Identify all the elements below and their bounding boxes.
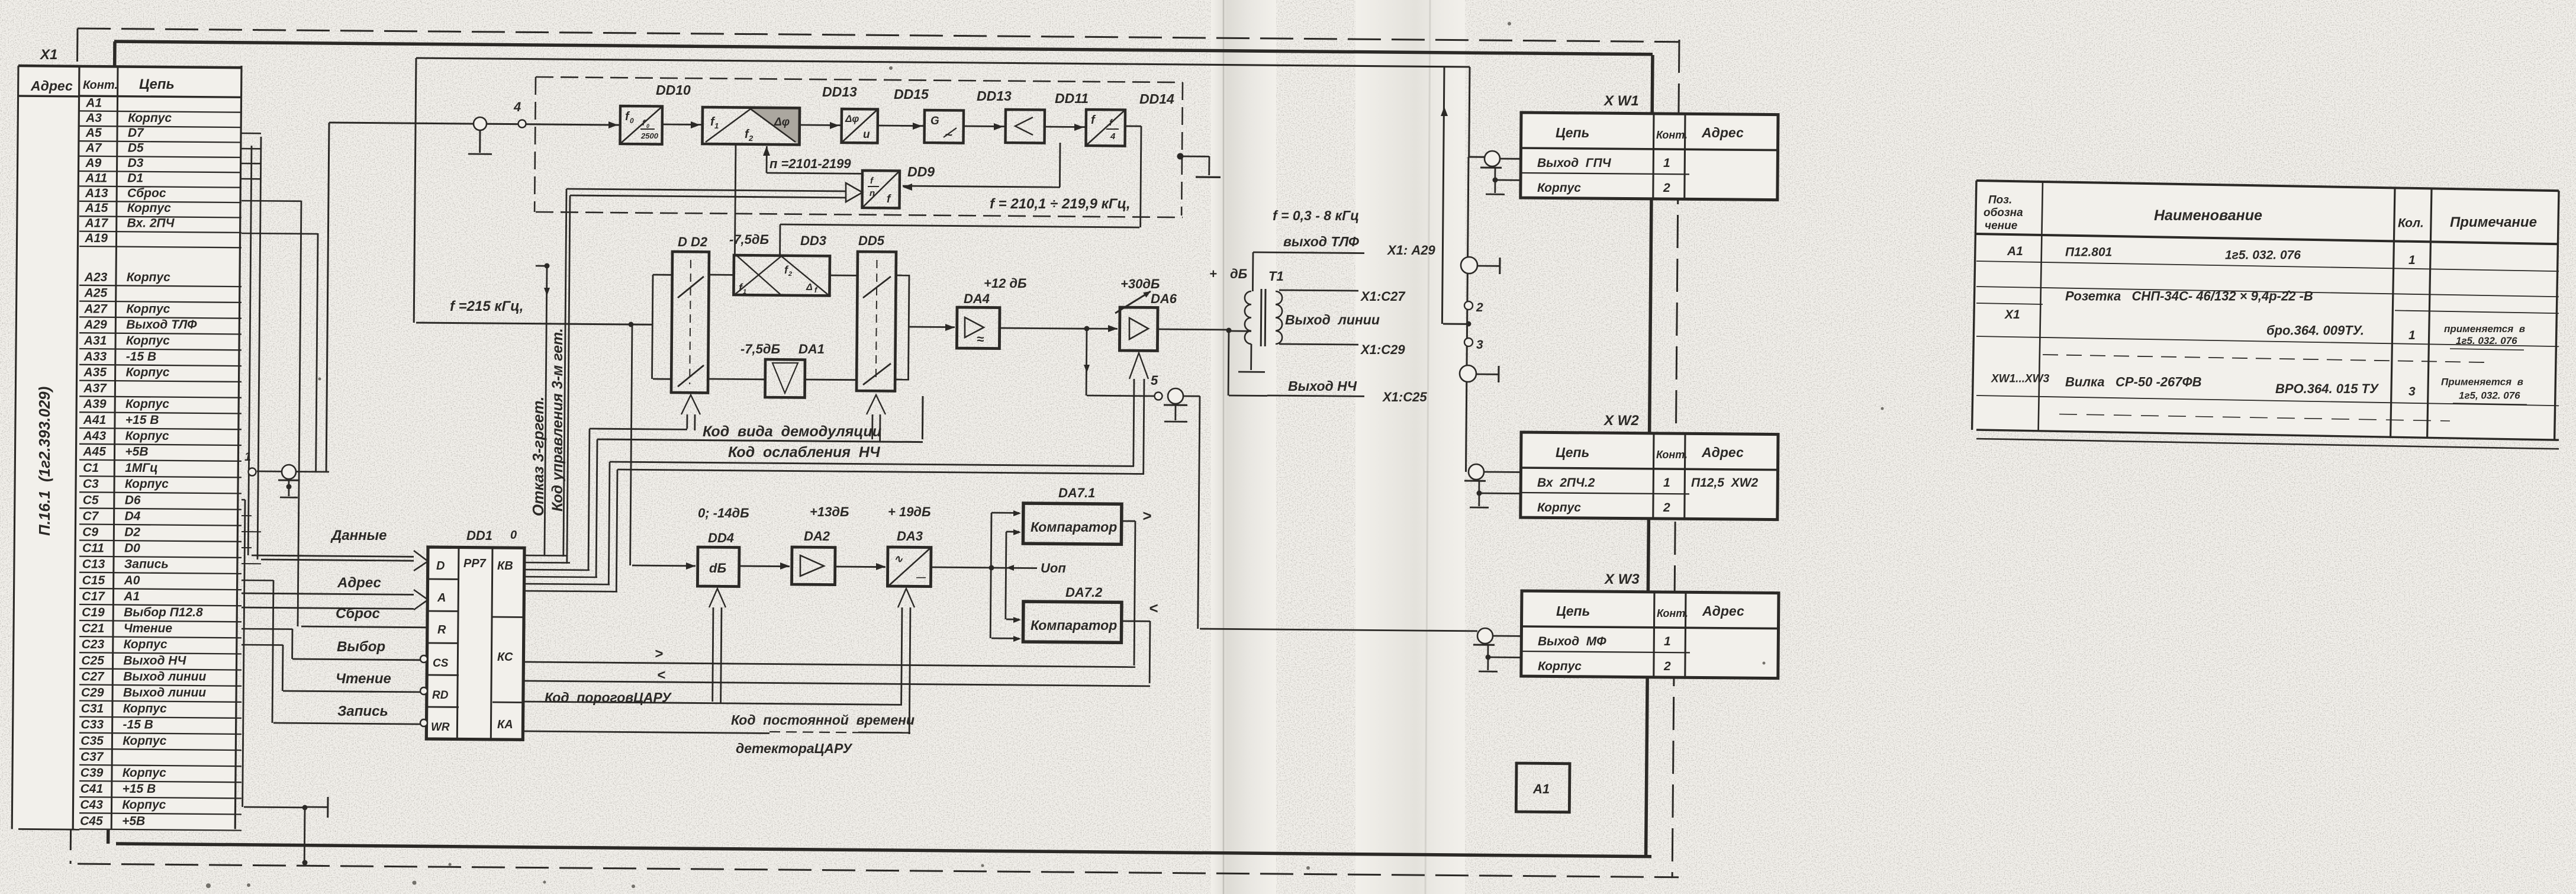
svg-text:3: 3 <box>1476 338 1483 352</box>
svg-text:0: 0 <box>646 123 649 129</box>
svg-text:Адрес: Адрес <box>337 575 381 591</box>
svg-text:WR: WR <box>431 721 450 734</box>
svg-text:Выход линии: Выход линии <box>123 686 206 700</box>
svg-text:D0: D0 <box>124 542 140 555</box>
svg-text:X W3: X W3 <box>1603 571 1640 587</box>
svg-text:Адрес: Адрес <box>1702 603 1744 619</box>
svg-text:Компаратор: Компаратор <box>1031 618 1117 633</box>
svg-text:+5В: +5В <box>122 814 145 828</box>
svg-text:Запись: Запись <box>337 703 388 719</box>
svg-text:ВРО.364. 015 ТУ: ВРО.364. 015 ТУ <box>2275 381 2379 396</box>
svg-text:+15 В: +15 В <box>123 782 156 796</box>
svg-text:DD5: DD5 <box>858 233 885 248</box>
svg-text:<: < <box>1149 599 1158 617</box>
svg-text:Сброс: Сброс <box>127 186 166 200</box>
svg-text:dБ: dБ <box>709 561 726 575</box>
svg-text:КС: КС <box>497 651 513 664</box>
svg-text:Корпус: Корпус <box>125 397 169 411</box>
svg-text:A29: A29 <box>83 318 107 332</box>
svg-text:C29: C29 <box>81 686 104 700</box>
svg-text:РР7: РР7 <box>463 557 487 570</box>
svg-text:C21: C21 <box>82 622 105 635</box>
svg-text:Корпус: Корпус <box>122 798 166 812</box>
svg-text:1: 1 <box>244 451 251 464</box>
svg-text:1: 1 <box>743 288 746 295</box>
svg-text:Выход МФ: Выход МФ <box>1538 635 1606 648</box>
svg-text:обозна: обозна <box>1983 207 2023 219</box>
svg-text:Δφ: Δφ <box>845 113 859 124</box>
svg-text:A11: A11 <box>85 171 107 185</box>
svg-text:A9: A9 <box>85 156 102 170</box>
svg-text:A15: A15 <box>85 201 108 215</box>
svg-text:Выбор П12.8: Выбор П12.8 <box>124 606 203 619</box>
svg-text:>: > <box>655 646 663 662</box>
svg-text:Корпус: Корпус <box>125 429 169 443</box>
svg-text:C9: C9 <box>82 526 98 539</box>
svg-text:Корпус: Корпус <box>125 477 169 491</box>
svg-text:Корпус: Корпус <box>123 734 166 748</box>
svg-text:Выход НЧ: Выход НЧ <box>1288 378 1357 394</box>
svg-text:А1: А1 <box>123 590 140 603</box>
svg-text:A1: A1 <box>85 96 102 110</box>
svg-text:G: G <box>930 115 939 127</box>
svg-text:1г5, 032. 076: 1г5, 032. 076 <box>2459 390 2520 401</box>
svg-text:2: 2 <box>748 134 754 143</box>
svg-text:1г5. 032. 076: 1г5. 032. 076 <box>2456 335 2517 346</box>
svg-text:+5В: +5В <box>125 445 148 459</box>
svg-text:чение: чение <box>1985 220 2018 232</box>
svg-text:Применяется в: Применяется в <box>2441 377 2523 388</box>
svg-text:A37: A37 <box>83 381 107 395</box>
svg-text:DA2: DA2 <box>804 529 830 544</box>
svg-text:дБ: дБ <box>1230 266 1247 281</box>
svg-text:DD1: DD1 <box>466 528 492 543</box>
svg-text:A3: A3 <box>85 111 102 125</box>
svg-text:XW1...XW3: XW1...XW3 <box>1991 372 2050 385</box>
svg-text:4: 4 <box>1110 131 1116 142</box>
svg-text:1МГц: 1МГц <box>125 461 158 475</box>
svg-text:C1: C1 <box>83 461 99 475</box>
svg-text:применяется в: применяется в <box>2444 323 2525 335</box>
svg-text:D: D <box>436 559 445 573</box>
svg-text:D1: D1 <box>127 171 143 185</box>
svg-text:+12 дБ: +12 дБ <box>984 276 1027 291</box>
svg-text:Выбор: Выбор <box>337 639 385 655</box>
svg-text:+13дБ: +13дБ <box>810 504 849 519</box>
svg-text:Корпус: Корпус <box>127 271 170 284</box>
svg-text:DD11: DD11 <box>1055 91 1089 106</box>
svg-text:A19: A19 <box>84 231 108 245</box>
svg-text:D6: D6 <box>125 493 141 507</box>
svg-text:1: 1 <box>714 121 719 130</box>
svg-text:Выход линии: Выход линии <box>123 670 206 683</box>
svg-text:выход ТЛФ: выход ТЛФ <box>1283 234 1359 249</box>
svg-text:C27: C27 <box>81 670 105 683</box>
svg-text:RD: RD <box>432 689 449 702</box>
svg-text:1: 1 <box>1663 156 1670 170</box>
svg-text:Корпус: Корпус <box>123 766 166 780</box>
svg-text:n: n <box>870 188 875 198</box>
svg-text:X1: А29: X1: А29 <box>1386 243 1435 258</box>
svg-text:A41: A41 <box>83 413 107 427</box>
svg-text:DD4: DD4 <box>708 530 734 545</box>
svg-text:Чтение: Чтение <box>336 671 391 687</box>
svg-text:CS: CS <box>433 657 449 670</box>
svg-text:Выход НЧ: Выход НЧ <box>123 654 186 667</box>
svg-text:∿: ∿ <box>894 553 903 565</box>
svg-text:детектораЦАРУ: детектораЦАРУ <box>736 741 853 756</box>
svg-text:f =215 кГц,: f =215 кГц, <box>450 298 523 314</box>
svg-text:DD3: DD3 <box>800 233 826 248</box>
svg-text:C17: C17 <box>82 590 105 603</box>
svg-text:Корпус: Корпус <box>126 366 170 380</box>
svg-text:Корпус: Корпус <box>126 334 170 348</box>
svg-text:C7: C7 <box>83 509 99 523</box>
svg-text:A17: A17 <box>85 217 109 230</box>
svg-text:D2: D2 <box>124 526 140 539</box>
svg-text:Выход ТЛФ: Выход ТЛФ <box>126 318 197 332</box>
svg-text:X W1: X W1 <box>1603 93 1639 109</box>
svg-text:C33: C33 <box>81 718 104 732</box>
svg-text:DD10: DD10 <box>656 82 691 98</box>
svg-text:-7,5дБ: -7,5дБ <box>740 342 780 356</box>
svg-text:DD13: DD13 <box>977 88 1012 104</box>
svg-text:1: 1 <box>2408 253 2416 267</box>
svg-text:DA1: DA1 <box>798 342 825 356</box>
svg-text:A31: A31 <box>83 334 107 348</box>
svg-text:бро.364. 009ТУ.: бро.364. 009ТУ. <box>2266 323 2364 338</box>
svg-text:Корпус: Корпус <box>126 302 170 316</box>
svg-text:п =2101-2199: п =2101-2199 <box>769 156 851 171</box>
svg-text:-7,5дБ: -7,5дБ <box>729 232 769 247</box>
svg-text:Корпус: Корпус <box>124 638 168 651</box>
svg-text:Сброс: Сброс <box>336 606 380 622</box>
svg-text:5: 5 <box>1151 373 1158 388</box>
svg-text:C43: C43 <box>80 798 103 812</box>
svg-text:D4: D4 <box>125 509 141 523</box>
svg-text:f = 0,3 - 8 кГц: f = 0,3 - 8 кГц <box>1273 208 1359 223</box>
svg-text:Корпус: Корпус <box>1538 660 1582 673</box>
svg-text:Конт.: Конт. <box>1657 607 1688 619</box>
svg-text:Конт.: Конт. <box>1656 449 1688 461</box>
svg-text:D7: D7 <box>128 126 144 140</box>
svg-text:2: 2 <box>1476 301 1483 314</box>
svg-text:A25: A25 <box>84 287 108 300</box>
svg-text:Розетка СНП-34С- 46/132 × 9,: Розетка СНП-34С- 46/132 × 9,4р-2̂2 -В <box>2065 289 2313 304</box>
svg-text:3: 3 <box>2408 385 2416 398</box>
svg-text:0; -14дБ: 0; -14дБ <box>698 506 749 520</box>
svg-text:Выход ГПЧ: Выход ГПЧ <box>1537 156 1612 170</box>
svg-text:КА: КА <box>497 718 513 731</box>
svg-text:DA4: DA4 <box>964 291 990 306</box>
svg-text:C41: C41 <box>80 782 104 796</box>
svg-text:Вилка СР-50 -267ФВ: Вилка СР-50 -267ФВ <box>2065 375 2202 390</box>
svg-text:Код пороговЦАРУ: Код пороговЦАРУ <box>545 690 672 705</box>
svg-text:DD15: DD15 <box>894 86 929 102</box>
svg-text:Чтение: Чтение <box>124 622 172 635</box>
svg-text:Конт.: Конт. <box>1656 129 1688 141</box>
svg-text:Т1: Т1 <box>1268 269 1284 284</box>
svg-text:П.16.1 (1г2.393.029): П.16.1 (1г2.393.029) <box>36 387 53 536</box>
svg-text:—: — <box>916 573 926 583</box>
svg-text:2500: 2500 <box>640 131 659 140</box>
svg-text:A39: A39 <box>83 397 107 411</box>
svg-text:Корпус: Корпус <box>123 702 167 716</box>
svg-text:≈: ≈ <box>977 332 984 346</box>
svg-text:+ 19дБ: + 19дБ <box>888 504 931 519</box>
svg-text:Корпус: Корпус <box>128 111 172 125</box>
svg-text:X1:С29: X1:С29 <box>1360 342 1405 357</box>
svg-text:Δ: Δ <box>806 282 813 292</box>
svg-text:Uоп: Uоп <box>1041 561 1066 575</box>
svg-text:C19: C19 <box>82 606 105 619</box>
svg-text:Вх. 2ПЧ: Вх. 2ПЧ <box>127 217 175 230</box>
svg-text:+: + <box>1209 266 1217 281</box>
svg-text:D D2: D D2 <box>678 234 708 249</box>
svg-text:A35: A35 <box>83 366 107 380</box>
svg-text:Цепь: Цепь <box>139 76 175 92</box>
svg-text:C31: C31 <box>81 702 104 716</box>
svg-text:A5: A5 <box>85 126 102 140</box>
svg-text:-15 В: -15 В <box>123 718 153 732</box>
svg-text:C35: C35 <box>80 734 104 748</box>
svg-text:+30дБ: +30дБ <box>1120 276 1160 291</box>
svg-text:+15 В: +15 В <box>125 413 159 427</box>
svg-text:DA7.1: DA7.1 <box>1058 485 1095 500</box>
svg-text:КВ: КВ <box>497 559 513 573</box>
svg-text:1: 1 <box>1663 476 1670 490</box>
svg-text:C37: C37 <box>80 750 104 764</box>
svg-text:A43: A43 <box>83 429 107 443</box>
svg-text:C13: C13 <box>82 558 105 571</box>
svg-text:Адрес: Адрес <box>30 78 73 94</box>
svg-text:~: ~ <box>945 127 952 142</box>
svg-text:Цепь: Цепь <box>1556 445 1589 460</box>
svg-text:X W2: X W2 <box>1603 413 1639 429</box>
svg-text:Примечание: Примечание <box>2450 214 2537 230</box>
svg-text:Кол.: Кол. <box>2398 217 2424 230</box>
svg-text:DD9: DD9 <box>907 164 935 179</box>
svg-text:A33: A33 <box>83 350 107 364</box>
svg-text:X1:С25: X1:С25 <box>1382 390 1427 404</box>
svg-text:А1: А1 <box>1532 782 1550 796</box>
svg-text:R: R <box>437 623 446 636</box>
svg-text:Конт.: Конт. <box>83 79 118 92</box>
svg-text:A45: A45 <box>82 445 106 459</box>
svg-text:C23: C23 <box>82 638 105 651</box>
svg-text:A23: A23 <box>84 271 108 284</box>
svg-text:u: u <box>863 128 870 141</box>
svg-text:C45: C45 <box>80 814 103 828</box>
svg-text:А1: А1 <box>2007 245 2023 258</box>
svg-text:A7: A7 <box>85 142 102 155</box>
svg-text:1: 1 <box>2408 329 2416 342</box>
svg-text:C25: C25 <box>81 654 104 667</box>
svg-text:C15: C15 <box>82 574 105 587</box>
svg-text:2: 2 <box>1663 181 1670 195</box>
svg-text:C39: C39 <box>80 766 104 780</box>
svg-text:Адрес: Адрес <box>1701 125 1744 140</box>
svg-text:D3: D3 <box>128 156 144 170</box>
svg-text:Код ослабления НЧ: Код ослабления НЧ <box>728 444 881 461</box>
svg-text:2: 2 <box>1663 501 1670 514</box>
svg-text:Запись: Запись <box>124 558 169 571</box>
svg-text:Корпус: Корпус <box>127 201 171 215</box>
svg-text:C5: C5 <box>83 493 99 507</box>
svg-text:Адрес: Адрес <box>1701 445 1744 460</box>
svg-text:0: 0 <box>510 529 517 542</box>
svg-text:-15 В: -15 В <box>126 350 156 364</box>
svg-text:Код постоянной времени: Код постоянной времени <box>731 712 915 728</box>
svg-text:0: 0 <box>630 117 634 125</box>
svg-text:D5: D5 <box>128 142 144 155</box>
svg-text:Вх 2ПЧ.2: Вх 2ПЧ.2 <box>1537 476 1595 490</box>
svg-text:Корпус: Корпус <box>1537 501 1581 514</box>
svg-text:X1: X1 <box>2004 308 2020 321</box>
svg-text:Код управления 3-м гет.: Код управления 3-м гет. <box>549 328 566 512</box>
svg-text:Код вида демодуляции: Код вида демодуляции <box>703 423 881 440</box>
svg-text:Данные: Данные <box>330 528 387 544</box>
svg-text:П12,5 XW2: П12,5 XW2 <box>1691 476 1758 490</box>
svg-text:Компаратор: Компаратор <box>1031 519 1117 535</box>
svg-text:DA6: DA6 <box>1151 291 1177 306</box>
svg-text:1: 1 <box>1664 635 1671 648</box>
svg-text:Выход линии: Выход линии <box>1285 312 1380 327</box>
svg-text:C3: C3 <box>83 477 99 491</box>
svg-text:Δφ: Δφ <box>774 116 790 128</box>
svg-text:<: < <box>657 667 665 683</box>
svg-text:4: 4 <box>513 99 521 114</box>
svg-text:2: 2 <box>1663 660 1671 673</box>
svg-text:П12.801: П12.801 <box>2065 246 2112 259</box>
svg-text:f = 210,1 ÷ 219,9 кГц,: f = 210,1 ÷ 219,9 кГц, <box>990 196 1131 212</box>
svg-text:DA3: DA3 <box>897 529 923 544</box>
svg-text:A: A <box>437 591 446 604</box>
svg-text:X1: X1 <box>39 47 57 63</box>
svg-text:DA7.2: DA7.2 <box>1065 585 1103 600</box>
svg-text:Цепь: Цепь <box>1556 125 1589 140</box>
svg-text:Поз.: Поз. <box>1988 194 2012 206</box>
svg-text:Цепь: Цепь <box>1556 603 1590 619</box>
svg-text:A27: A27 <box>83 302 108 316</box>
svg-text:A13: A13 <box>85 186 108 200</box>
svg-text:Корпус: Корпус <box>1537 181 1581 195</box>
svg-text:>: > <box>1142 507 1151 525</box>
svg-text:1г5. 032. 076: 1г5. 032. 076 <box>2225 248 2301 262</box>
svg-text:DD14: DD14 <box>1139 91 1174 107</box>
svg-text:А0: А0 <box>124 574 140 587</box>
svg-text:DD13: DD13 <box>822 84 857 99</box>
svg-text:X1:С27: X1:С27 <box>1360 289 1406 304</box>
svg-text:Отказ 3-гргет.: Отказ 3-гргет. <box>529 397 547 516</box>
svg-text:Наименование: Наименование <box>2154 207 2262 224</box>
svg-text:C11: C11 <box>82 542 104 555</box>
svg-text:2: 2 <box>788 271 792 278</box>
